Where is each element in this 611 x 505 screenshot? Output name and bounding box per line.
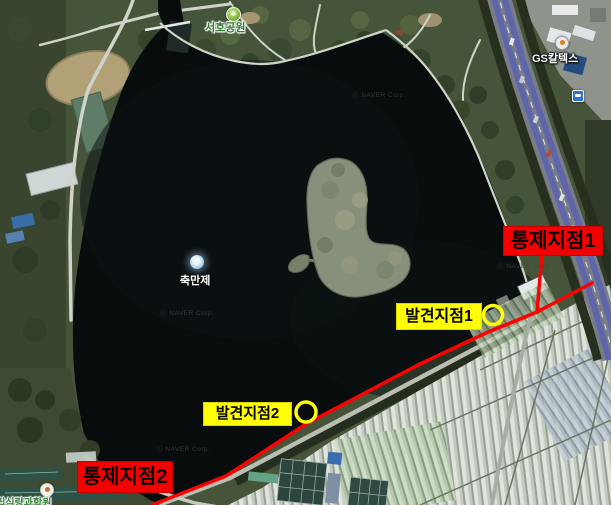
control-point-1-label: 통제지점1 (503, 226, 603, 256)
reservoir-marker-icon (190, 255, 204, 269)
gas-station-icon (555, 36, 569, 50)
imagery-watermark: ⓒ NAVER Corp. (160, 307, 214, 317)
control-point-2-label: 통제지점2 (77, 461, 173, 493)
imagery-watermark: ⓒ NAVER Corp. (497, 260, 551, 270)
satellite-map[interactable]: ♣ 서호공원 GS칼텍스 축만제 국립식량과학원 ⓒ NAVER Corp. ⓒ… (0, 0, 611, 505)
discovery-point-2-label: 발견지점2 (203, 402, 292, 426)
institute-icon (40, 483, 54, 497)
park-icon: ♣ (226, 7, 241, 22)
transit-station-icon (572, 90, 584, 102)
imagery-watermark: ⓒ NAVER Corp. (352, 89, 406, 99)
imagery-watermark: ⓒ NAVER Corp. (156, 443, 210, 453)
discovery-point-1-label: 발견지점1 (396, 303, 482, 330)
